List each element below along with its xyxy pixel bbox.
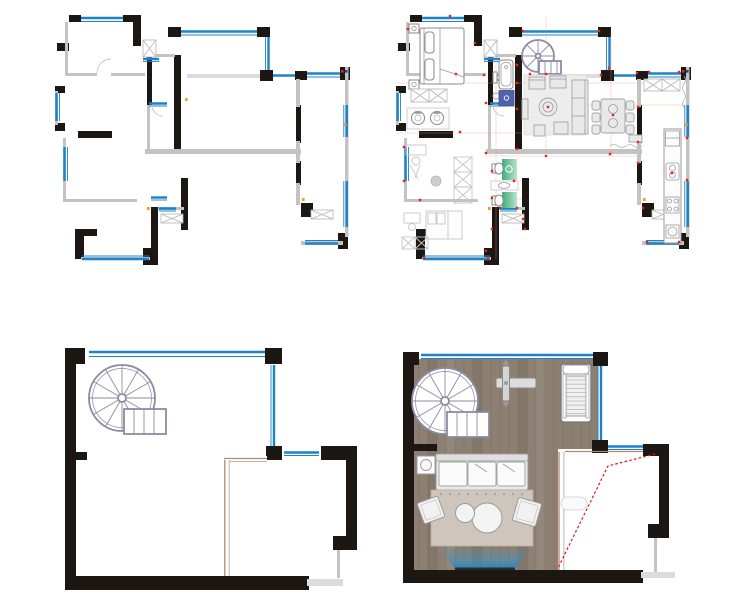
sofa-set — [522, 75, 588, 136]
side-table — [417, 456, 435, 474]
sofa — [436, 454, 528, 490]
sideboard-icon — [629, 135, 642, 142]
shower-icon — [499, 91, 514, 107]
red-dashed-sightline — [558, 454, 655, 568]
dining-table — [592, 99, 642, 142]
laundry-area — [407, 89, 449, 129]
plan-main-floor-furnished — [396, 15, 691, 265]
screen-icon — [455, 568, 515, 571]
study-furniture — [406, 145, 472, 203]
shower-floor — [502, 159, 517, 180]
toilet-icon — [495, 163, 503, 174]
bedroom-sketch — [402, 211, 462, 249]
bed — [409, 24, 464, 89]
shower-floor — [502, 192, 517, 208]
floor-plans-drawing — [0, 0, 750, 613]
small-bathrooms — [491, 159, 518, 208]
floor-plan-sheet — [0, 0, 750, 613]
partition-wall — [558, 452, 643, 571]
toilet-icon — [493, 72, 497, 83]
treadmill — [561, 364, 591, 422]
toilet-icon — [495, 195, 503, 206]
plan-loft-furnished — [403, 352, 675, 583]
curtain-icon — [683, 76, 686, 108]
partition-wall — [224, 456, 267, 576]
plan-main-floor-structural — [55, 15, 350, 265]
ottoman — [561, 497, 587, 510]
plan-loft-structural — [65, 348, 357, 590]
tv-cabinet-icon — [522, 99, 528, 119]
